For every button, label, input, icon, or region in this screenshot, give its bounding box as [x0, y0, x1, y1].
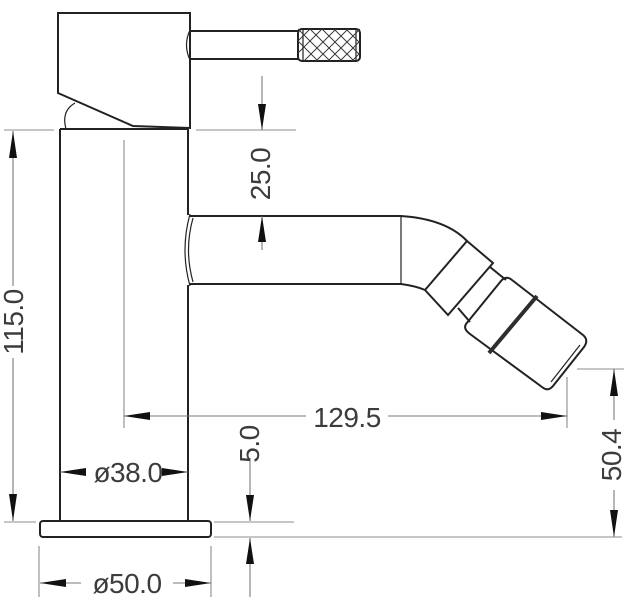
- aerator: [465, 278, 586, 390]
- arrow-down-icon: [610, 510, 618, 537]
- arrow-right-icon: [185, 579, 211, 587]
- arrow-up-icon: [258, 216, 266, 242]
- faucet-technical-drawing: 115.0 25.0 129.5 ø38.0 5.0 ø50: [0, 0, 626, 600]
- arrow-up-icon: [610, 369, 618, 396]
- arrow-right-icon: [162, 468, 188, 476]
- arrow-down-icon: [246, 495, 254, 521]
- arrow-left-icon: [40, 579, 66, 587]
- aerator-tip-line: [551, 345, 580, 382]
- arrow-down-icon: [258, 104, 266, 130]
- dimension-50-4: 50.4: [596, 369, 626, 537]
- lever-rod: [187, 30, 299, 60]
- arrow-right-icon: [541, 412, 567, 420]
- knurl-pattern: [298, 29, 360, 61]
- arrow-down-icon: [9, 494, 17, 521]
- spout-bend-inner: [401, 284, 425, 290]
- handle-body: [58, 13, 190, 128]
- dimension-38: ø38.0: [60, 457, 188, 488]
- arrow-left-icon: [124, 412, 150, 420]
- reference-lines: [4, 130, 624, 597]
- spout-saddle-arc-2: [189, 218, 194, 282]
- handle-shoulder-arc: [65, 103, 75, 129]
- arrow-left-icon: [60, 468, 86, 476]
- dim-label-38: ø38.0: [93, 457, 162, 488]
- knurled-grip: [298, 29, 360, 61]
- dimension-5: 5.0: [234, 425, 265, 597]
- dim-label-5: 5.0: [234, 425, 265, 462]
- arrow-up-icon: [246, 538, 254, 564]
- aerator-ring-band: [489, 296, 537, 353]
- dimension-25: 25.0: [245, 76, 276, 250]
- dim-label-129-5: 129.5: [313, 402, 381, 433]
- dim-label-50: ø50.0: [92, 568, 161, 599]
- technical-drawing-canvas: 115.0 25.0 129.5 ø38.0 5.0 ø50: [0, 0, 626, 600]
- dimension-129-5: 129.5: [124, 402, 567, 433]
- aerator-body: [465, 278, 586, 390]
- arrow-up-icon: [9, 131, 17, 158]
- dim-label-115: 115.0: [0, 289, 29, 355]
- dimension-50: ø50.0: [40, 568, 211, 599]
- dim-label-25: 25.0: [245, 148, 276, 201]
- spout-bend-outer: [401, 216, 467, 241]
- spout-saddle-arc-1: [185, 214, 190, 286]
- spout: [185, 214, 467, 290]
- base-plate: [40, 521, 211, 537]
- dim-label-50-4: 50.4: [596, 429, 626, 482]
- dimension-115: 115.0: [0, 131, 29, 521]
